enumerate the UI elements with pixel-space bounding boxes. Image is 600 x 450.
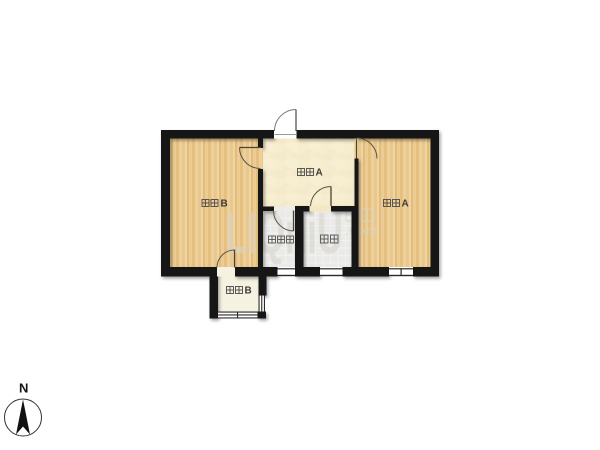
svg-text:B: B xyxy=(221,199,228,210)
svg-text:A: A xyxy=(402,199,409,210)
svg-text:B: B xyxy=(245,286,252,297)
svg-text:A: A xyxy=(316,168,323,179)
svg-text:.com: .com xyxy=(345,222,378,238)
svg-text:N: N xyxy=(19,381,28,396)
